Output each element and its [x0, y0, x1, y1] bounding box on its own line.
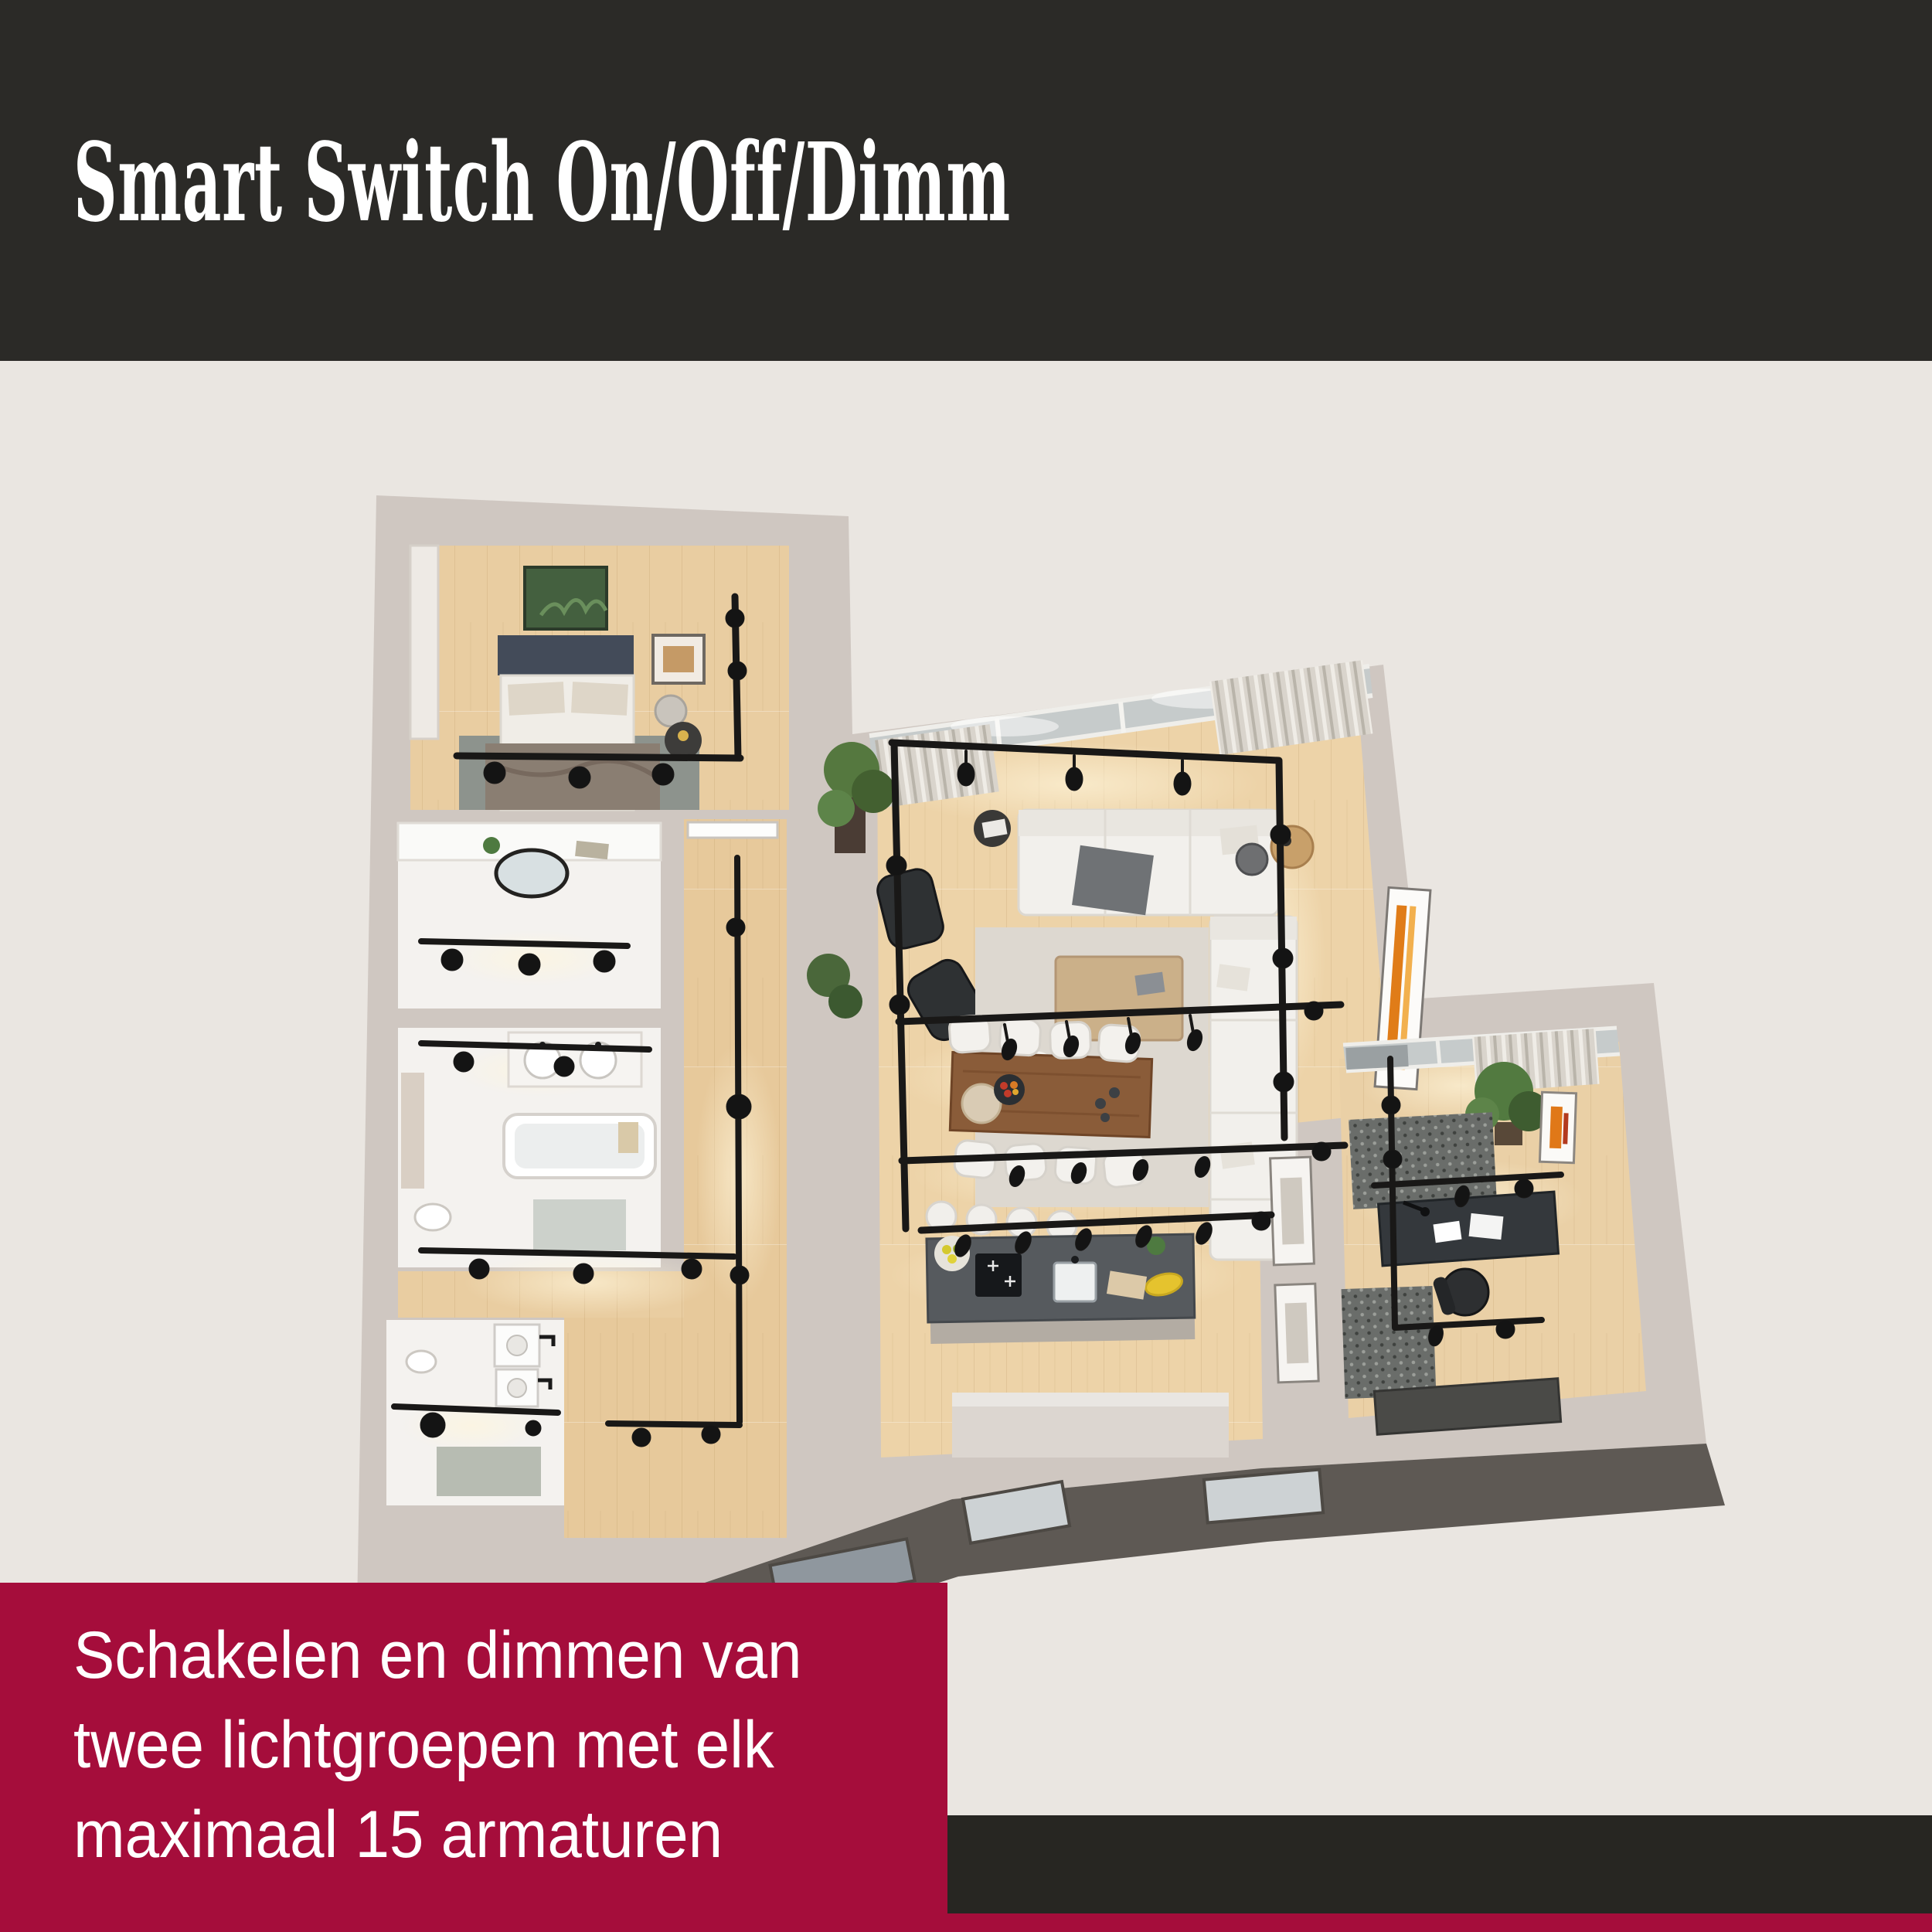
pendant-lamp: [1236, 844, 1267, 875]
caption-line-3: maximaal 15 armaturen: [73, 1790, 802, 1879]
facade-window: [1204, 1470, 1323, 1523]
paper: [1433, 1221, 1461, 1243]
shelf: [401, 1073, 424, 1189]
toilet: [415, 1204, 451, 1230]
footer-band: [947, 1815, 1932, 1913]
utility-rug: [437, 1447, 541, 1496]
caption-line-1: Schakelen en dimmen van: [73, 1611, 802, 1700]
plant-wall-art: [525, 567, 607, 629]
oval-mirror: [496, 850, 567, 896]
laptop: [1469, 1213, 1504, 1240]
bed-headboard: [498, 635, 634, 675]
door: [688, 822, 777, 838]
caption-line-2: twee lichtgroepen met elk: [73, 1700, 802, 1790]
hallway: [688, 822, 777, 838]
office-rug: [1342, 1286, 1437, 1399]
footer-accent-strip: [0, 1913, 1932, 1932]
nightstand: [655, 696, 686, 726]
pillow: [1216, 964, 1250, 991]
wardrobe: [410, 546, 438, 739]
marketing-graphic: Smart Switch On/Off/Dimm: [0, 0, 1932, 1932]
pillow: [571, 682, 628, 716]
office-rug: [1349, 1112, 1497, 1209]
faucet: [1071, 1256, 1079, 1264]
small-plant: [483, 837, 500, 854]
bath-mat: [533, 1199, 626, 1250]
toilet: [406, 1351, 436, 1372]
orange-wall-art: [1539, 1092, 1576, 1162]
island-sink: [1054, 1263, 1096, 1301]
caption-text: Schakelen en dimmen van twee lichtgroepe…: [73, 1611, 802, 1879]
pillow: [508, 682, 565, 716]
throw-blanket: [1072, 845, 1154, 916]
induction-cooktop: [975, 1253, 1022, 1297]
book: [1134, 972, 1165, 996]
towel: [618, 1122, 638, 1153]
fruit-bowl: [994, 1074, 1025, 1105]
caption-banner: Schakelen en dimmen van twee lichtgroepe…: [0, 1583, 947, 1932]
